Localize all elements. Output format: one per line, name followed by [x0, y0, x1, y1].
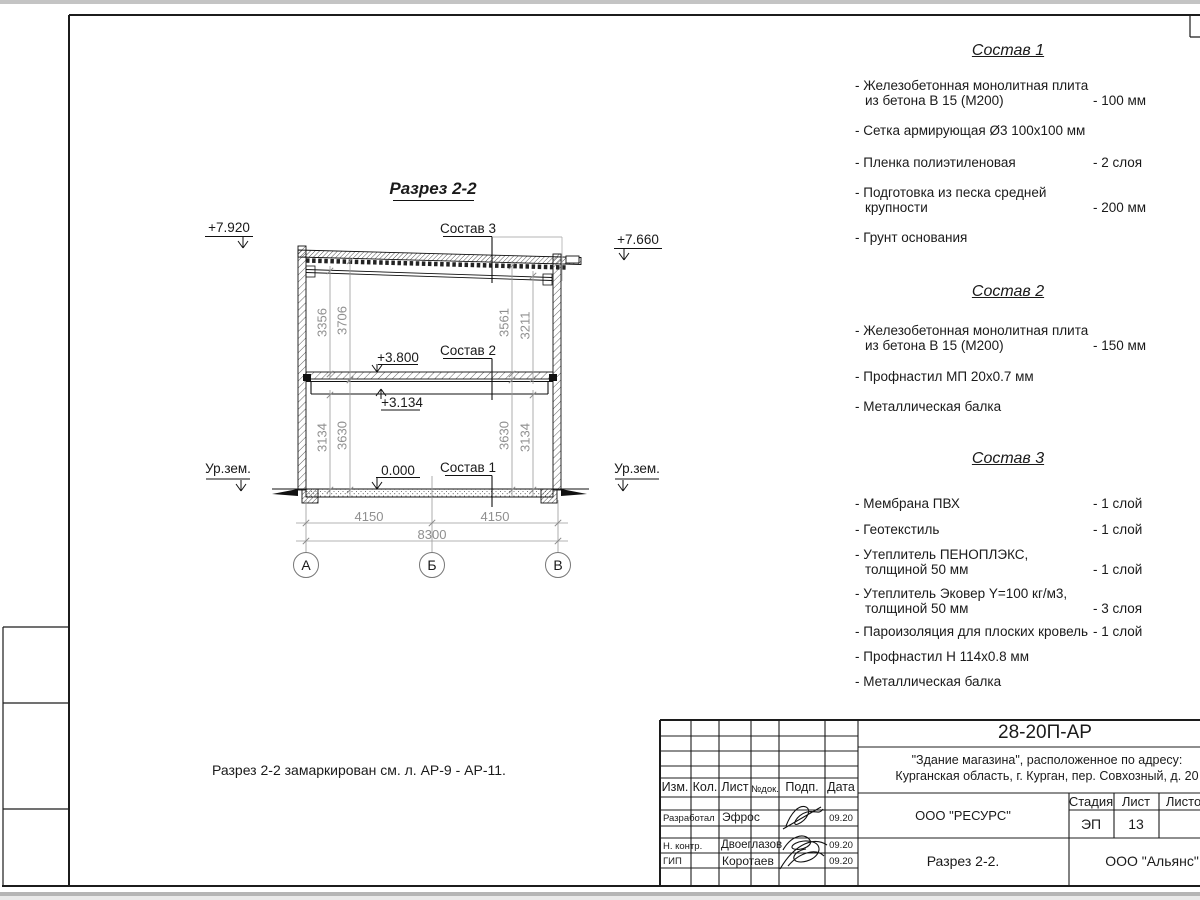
item-text: - Металлическая балка: [855, 400, 1093, 415]
axis-label-a: А: [301, 557, 310, 573]
item-text: - Мембрана ПВХ: [855, 497, 1093, 512]
item-value: - 1 слой: [1093, 497, 1157, 512]
foundation-right: [541, 489, 557, 503]
elevation-floor: +3.800: [377, 350, 419, 365]
dim-h-8300: 8300: [418, 527, 447, 542]
composition-3-item: - Утеплитель Эковер Y=100 кг/м3,толщиной…: [855, 587, 1157, 616]
elevation-top-left: +7.920: [208, 220, 250, 235]
item-value: - 200 мм: [1093, 201, 1157, 216]
sheet-note: Разрез 2-2 замаркирован см. л. АР-9 - АР…: [212, 762, 506, 778]
dim-v-3630-left: 3630: [335, 414, 350, 458]
composition-2-item: - Профнастил МП 20х0.7 мм: [855, 370, 1157, 385]
elevation-arrow-0000: [372, 478, 382, 489]
titleblock-role-developer: Разработал: [663, 813, 715, 824]
label-sostav2: Состав 2: [440, 343, 496, 358]
item-value: - 100 мм: [1093, 94, 1157, 109]
item-text: - Подготовка из песка средней: [855, 186, 1093, 201]
titleblock-col-podp: Подп.: [785, 780, 818, 794]
dim-v-3561: 3561: [497, 301, 512, 345]
titleblock-list-label: Лист: [1122, 794, 1150, 809]
dim-v-3356: 3356: [315, 301, 330, 345]
composition-3-item: - Профнастил Н 114х0.8 мм: [855, 650, 1157, 665]
item-value: - 150 мм: [1093, 339, 1157, 354]
roof-slab: [298, 250, 581, 265]
item-text: - Сетка армирующая Ø3 100х100 мм: [855, 124, 1093, 139]
titleblock-name-gip: Коротаев: [722, 854, 774, 868]
composition-3-item: - Металлическая балка: [855, 675, 1157, 690]
drawing-sheet: Разрез 2-2 +7.920 +7.660 Состав 3 Состав…: [0, 0, 1200, 900]
titleblock-object-line1: "Здание магазина", расположенное по адре…: [912, 753, 1183, 767]
item-value: - 1 слой: [1093, 625, 1157, 640]
elevation-top-right: +7.660: [617, 232, 659, 247]
titleblock-listov-label: Листов: [1166, 794, 1200, 809]
composition-3-item: - Пароизоляция для плоских кровель - 1 с…: [855, 625, 1157, 640]
label-sostav3: Состав 3: [440, 221, 496, 236]
composition-1-item: - Сетка армирующая Ø3 100х100 мм: [855, 124, 1157, 139]
item-text: - Утеплитель Эковер Y=100 кг/м3,: [855, 587, 1093, 602]
floor-pad-right: [549, 374, 557, 381]
axis-label-b: Б: [427, 557, 436, 573]
left-wall: [298, 246, 306, 490]
item-value: - 1 слой: [1093, 563, 1157, 578]
ground-level-label-left: Ур.зем.: [205, 461, 251, 476]
titleblock-col-list: Лист: [721, 780, 748, 794]
dim-v-3706: 3706: [335, 299, 350, 343]
axis-label-v: В: [553, 557, 562, 573]
titleblock-date-developer: 09.20: [829, 813, 853, 824]
titleblock-stage-label: Стадия: [1069, 794, 1113, 809]
titleblock-col-data: Дата: [827, 780, 855, 794]
ground-arrow-left: [236, 480, 246, 491]
item-text: - Геотекстиль: [855, 523, 1093, 538]
titleblock-col-ndok: №док.: [751, 784, 779, 795]
item-text: - Железобетонная монолитная плита: [855, 324, 1093, 339]
frame-left-cells: [3, 627, 69, 885]
titleblock-list-value: 13: [1128, 816, 1144, 832]
floor-slab: [306, 372, 553, 379]
item-text-2: из бетона В 15 (М200): [855, 339, 1093, 354]
item-text: - Утеплитель ПЕНОПЛЭКС,: [855, 548, 1093, 563]
item-text-2: толщиной 50 мм: [855, 602, 1093, 617]
ground-flare-right: [561, 489, 587, 496]
item-text: - Профнастил МП 20х0.7 мм: [855, 370, 1093, 385]
titleblock-sheet-name: Разрез 2-2.: [927, 853, 1000, 869]
composition-2-title: Состав 2: [972, 283, 1044, 301]
composition-3-title: Состав 3: [972, 450, 1044, 468]
elevation-arrow-3800: [372, 364, 382, 372]
right-wall: [553, 254, 561, 490]
titleblock-col-kol: Кол.: [693, 780, 718, 794]
dim-v-3211: 3211: [518, 304, 533, 348]
item-text: - Пленка полиэтиленовая: [855, 156, 1093, 171]
ground-slab: [306, 489, 553, 497]
foundation-left: [302, 489, 318, 503]
elevation-arrow-7920: [238, 237, 248, 248]
titleblock-doc-code: 28-20П-АР: [998, 722, 1092, 744]
roof-beam: [306, 270, 552, 281]
roof-end-cap: [566, 256, 579, 263]
item-text: - Металлическая балка: [855, 675, 1093, 690]
elevation-beam: +3.134: [381, 395, 423, 410]
elevation-arrow-7660: [619, 249, 629, 260]
item-text: - Пароизоляция для плоских кровель: [855, 625, 1093, 640]
titleblock-date-gip: 09.20: [829, 856, 853, 867]
titleblock-object-line2: Курганская область, г. Курган, пер. Совх…: [895, 769, 1198, 783]
item-value: - 2 слоя: [1093, 156, 1157, 171]
dim-v-3134-left: 3134: [315, 416, 330, 460]
elevation-zero: 0.000: [381, 463, 415, 478]
item-text: - Железобетонная монолитная плита: [855, 79, 1093, 94]
titleblock-col-izm: Изм.: [662, 780, 689, 794]
dim-v-3630-right: 3630: [497, 414, 512, 458]
composition-1-item: - Пленка полиэтиленовая - 2 слоя: [855, 156, 1157, 171]
composition-1-item: - Подготовка из песка среднейкрупности -…: [855, 186, 1157, 215]
item-text-2: из бетона В 15 (М200): [855, 94, 1093, 109]
composition-3-item: - Геотекстиль - 1 слой: [855, 523, 1157, 538]
composition-2-item: - Железобетонная монолитная плитаиз бето…: [855, 324, 1157, 353]
dim-h-4150-left: 4150: [355, 509, 384, 524]
item-text-2: толщиной 50 мм: [855, 563, 1093, 578]
section-title: Разрез 2-2: [389, 179, 476, 199]
composition-1-title: Состав 1: [972, 42, 1044, 60]
roof-corbel-left: [306, 266, 315, 277]
composition-2-item: - Металлическая балка: [855, 400, 1157, 415]
composition-1-item: - Железобетонная монолитная плитаиз бето…: [855, 79, 1157, 108]
dim-h-4150-right: 4150: [481, 509, 510, 524]
titleblock-name-developer: Эфрос: [722, 810, 760, 824]
titleblock-role-gip: ГИП: [663, 856, 682, 867]
titleblock-date-ncontrol: 09.20: [829, 840, 853, 851]
text-underlines: [205, 201, 662, 480]
ground-level-label-right: Ур.зем.: [614, 461, 660, 476]
composition-1-item: - Грунт основания: [855, 231, 1157, 246]
ground-arrow-right: [618, 480, 628, 491]
frame-corner-box: [1190, 16, 1200, 37]
titleblock-role-ncontrol: Н. контр.: [663, 841, 702, 852]
titleblock-org-customer: ООО "Альянс": [1105, 853, 1199, 869]
titleblock-name-ncontrol: Двоеглазов: [721, 839, 782, 851]
titleblock-stage-value: ЭП: [1081, 816, 1101, 832]
label-sostav1: Состав 1: [440, 460, 496, 475]
item-text-2: крупности: [855, 201, 1093, 216]
item-text: - Профнастил Н 114х0.8 мм: [855, 650, 1093, 665]
item-value: - 3 слоя: [1093, 602, 1157, 617]
floor-pad-left: [303, 374, 311, 381]
roof-corbel-right: [543, 274, 552, 285]
ground-flare-left: [272, 489, 298, 496]
composition-3-item: - Утеплитель ПЕНОПЛЭКС,толщиной 50 мм - …: [855, 548, 1157, 577]
item-value: - 1 слой: [1093, 523, 1157, 538]
dim-v-3134-right: 3134: [518, 416, 533, 460]
composition-3-item: - Мембрана ПВХ - 1 слой: [855, 497, 1157, 512]
titleblock-org-design: ООО "РЕСУРС": [915, 808, 1011, 823]
item-text: - Грунт основания: [855, 231, 1093, 246]
